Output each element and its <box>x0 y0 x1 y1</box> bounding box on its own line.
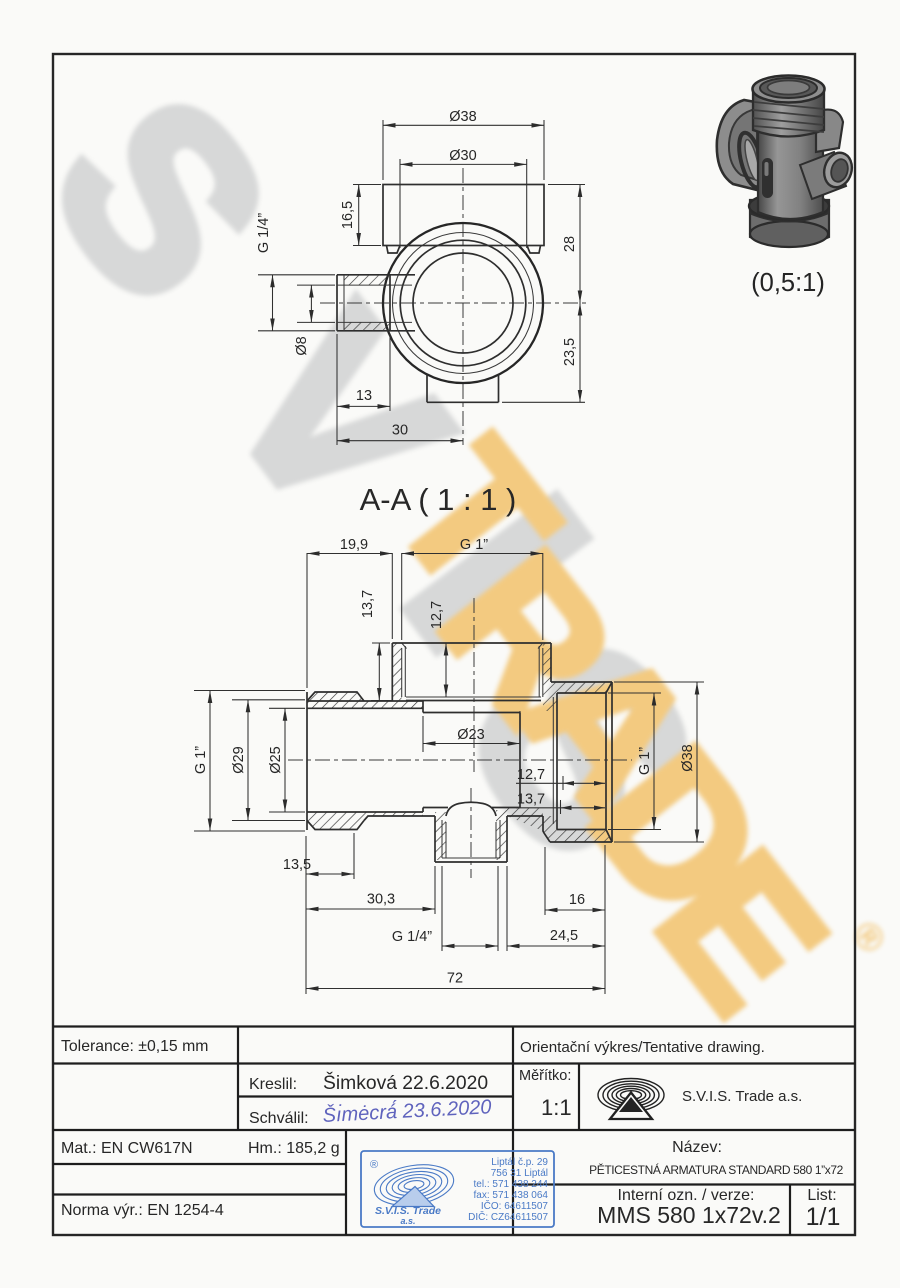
svg-text:13,7: 13,7 <box>517 792 545 808</box>
svg-text:List:: List: <box>807 1187 836 1204</box>
svg-text:Měřítko:: Měřítko: <box>519 1068 571 1084</box>
svg-text:1:1: 1:1 <box>541 1095 572 1120</box>
svg-text:®: ® <box>370 1159 378 1171</box>
svg-text:(0,5:1): (0,5:1) <box>751 269 825 297</box>
svg-text:G 1”: G 1” <box>637 747 653 775</box>
svg-text:Hm.: 185,2 g: Hm.: 185,2 g <box>248 1140 340 1157</box>
svg-text:Název:: Název: <box>672 1139 722 1156</box>
svg-text:Orientační výkres/Tentative dr: Orientační výkres/Tentative drawing. <box>520 1039 765 1056</box>
svg-text:G 1/4”: G 1/4” <box>392 929 432 945</box>
svg-text:S: S <box>0 48 323 349</box>
svg-text:fax: 571 438 064: fax: 571 438 064 <box>473 1190 548 1201</box>
svg-text:28: 28 <box>562 236 578 252</box>
svg-text:PĚTICESTNÁ ARMATURA STANDARD 5: PĚTICESTNÁ ARMATURA STANDARD 580 1”x72 <box>589 1162 843 1177</box>
svg-text:13,7: 13,7 <box>360 590 376 618</box>
svg-text:G 1”: G 1” <box>460 537 488 553</box>
svg-text:19,9: 19,9 <box>340 537 368 553</box>
svg-text:Ø29: Ø29 <box>231 746 247 773</box>
svg-text:Ø25: Ø25 <box>268 746 284 773</box>
svg-text:12,7: 12,7 <box>429 601 445 629</box>
svg-text:Ø38: Ø38 <box>449 109 476 125</box>
svg-text:Norma výr.: EN 1254-4: Norma výr.: EN 1254-4 <box>61 1202 224 1219</box>
svg-text:1/1: 1/1 <box>806 1203 841 1231</box>
svg-text:Ø30: Ø30 <box>449 148 476 164</box>
svg-text:Ø38: Ø38 <box>680 744 696 771</box>
svg-text:IČO: 64611507: IČO: 64611507 <box>481 1199 549 1212</box>
svg-text:DIČ: CZ64611507: DIČ: CZ64611507 <box>468 1210 548 1223</box>
svg-text:Schválil:: Schválil: <box>249 1110 309 1127</box>
svg-text:756 31 Liptál: 756 31 Liptál <box>491 1168 548 1179</box>
svg-text:Liptál č.p. 29: Liptál č.p. 29 <box>491 1157 548 1168</box>
svg-text:S.V.I.S. Trade a.s.: S.V.I.S. Trade a.s. <box>682 1088 802 1105</box>
svg-text:72: 72 <box>447 971 463 987</box>
svg-text:Ø23: Ø23 <box>457 727 484 743</box>
svg-text:16: 16 <box>569 892 585 908</box>
svg-text:Šı̇mėcrá́ 23.6.2020: Šı̇mėcrá́ 23.6.2020 <box>322 1095 492 1127</box>
svg-text:Šimková 22.6.2020: Šimková 22.6.2020 <box>323 1071 488 1094</box>
svg-text:16,5: 16,5 <box>340 201 356 229</box>
svg-text:24,5: 24,5 <box>550 928 578 944</box>
svg-text:a.s.: a.s. <box>400 1216 415 1226</box>
svg-text:23,5: 23,5 <box>562 338 578 366</box>
svg-text:G 1/4”: G 1/4” <box>256 213 272 253</box>
svg-text:13: 13 <box>356 388 372 404</box>
svg-text:G 1”: G 1” <box>193 746 209 774</box>
svg-text:Mat.: EN CW617N: Mat.: EN CW617N <box>61 1140 193 1157</box>
svg-text:13,5: 13,5 <box>283 857 311 873</box>
svg-text:MMS 580 1x72v.2: MMS 580 1x72v.2 <box>597 1202 781 1228</box>
svg-text:A-A ( 1 : 1 ): A-A ( 1 : 1 ) <box>360 482 517 517</box>
svg-text:30,3: 30,3 <box>367 892 395 908</box>
svg-text:12,7: 12,7 <box>517 767 545 783</box>
svg-text:Tolerance: ±0,15 mm: Tolerance: ±0,15 mm <box>61 1038 208 1055</box>
svg-text:Ø8: Ø8 <box>294 336 310 355</box>
svg-text:30: 30 <box>392 423 408 439</box>
svg-text:tel.: 571 438 244: tel.: 571 438 244 <box>473 1179 548 1190</box>
svg-text:Kreslil:: Kreslil: <box>249 1076 297 1093</box>
